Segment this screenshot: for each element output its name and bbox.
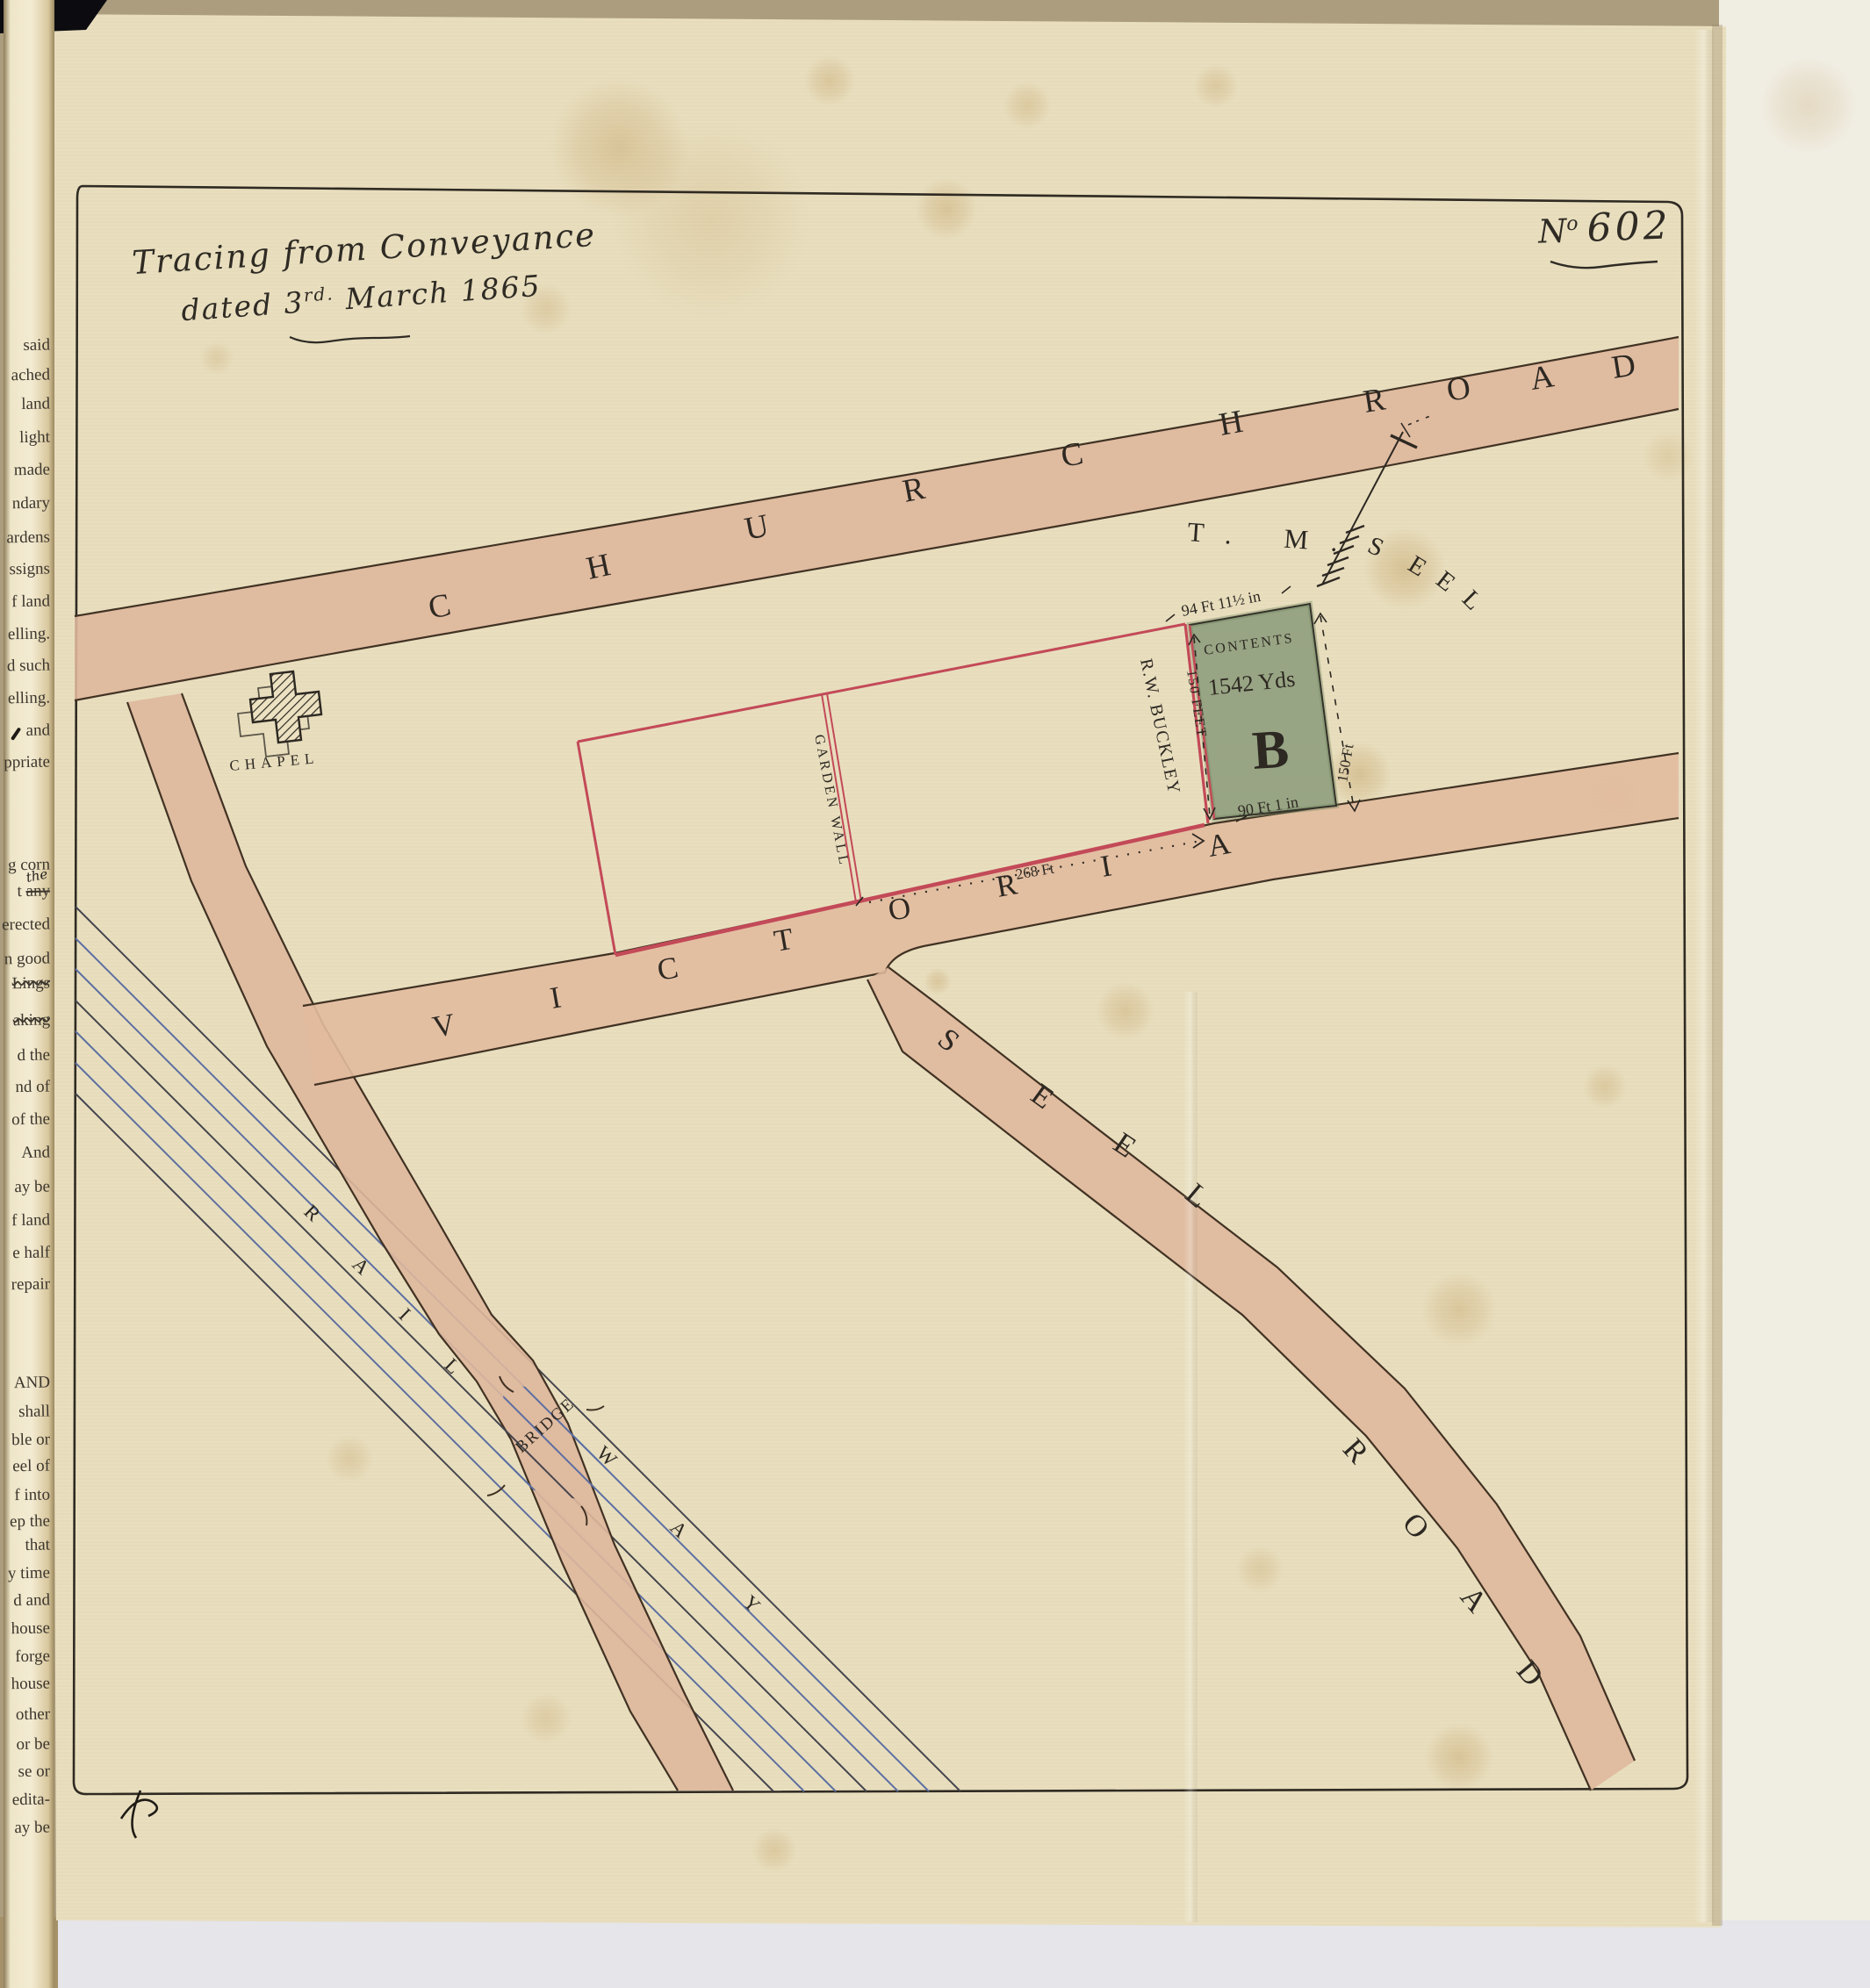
margin-line: ay be [0, 1818, 50, 1838]
margin-line: ardens [0, 528, 50, 548]
margin-line: light [0, 427, 50, 448]
plan-number-value: 602 [1586, 203, 1672, 250]
book-page-text-strip: said ached land light made ndary ardens … [4, 0, 54, 1988]
margin-line: se or [0, 1762, 50, 1782]
margin-line: f into [0, 1485, 50, 1505]
margin-line: d such [0, 656, 50, 676]
plot-b-name: B [1250, 719, 1291, 781]
margin-line: y time [0, 1563, 50, 1583]
margin-line: shall [0, 1402, 50, 1422]
margin-line: ppriate [0, 752, 50, 772]
margin-line: nd of [0, 1077, 50, 1097]
title-date-ordinal: rd. [303, 283, 334, 305]
margin-line: ay be [0, 1177, 50, 1197]
margin-line: e half [0, 1243, 50, 1263]
margin-line: elling. [0, 688, 50, 708]
margin-line: edita- [0, 1790, 50, 1810]
margin-line: f land [0, 592, 50, 612]
margin-line: of the [0, 1109, 50, 1130]
margin-line: And [0, 1143, 50, 1163]
right-page-edge [1719, 0, 1870, 1988]
margin-line: AND [0, 1373, 50, 1393]
margin-line: ssigns [0, 559, 50, 579]
paper-crease [1183, 992, 1198, 1922]
margin-line-struck: aking [0, 1010, 50, 1030]
margin-line: and [0, 721, 50, 741]
margin-line: d and [0, 1590, 50, 1611]
margin-line-corrected: t anythe [0, 881, 50, 901]
bottom-backing-strip [53, 1920, 1870, 1988]
scanned-conveyance-plan: C H U R C H R O A D V I C T O R I A 268 … [0, 0, 1870, 1988]
margin-line: land [0, 394, 50, 414]
margin-line: ndary [0, 493, 50, 513]
margin-line: that [0, 1535, 50, 1555]
margin-line: said [0, 335, 50, 355]
margin-line: house [0, 1674, 50, 1694]
margin-line: elling. [0, 624, 50, 644]
margin-line: f land [0, 1210, 50, 1231]
margin-line: n good [0, 949, 50, 969]
margin-line: or be [0, 1734, 50, 1755]
margin-line: erected [0, 915, 50, 935]
paper-crease [1694, 30, 1714, 1922]
margin-line: ble or [0, 1430, 50, 1450]
margin-line: repair [0, 1274, 50, 1295]
margin-line: ep the [0, 1511, 50, 1532]
margin-line: forge [0, 1647, 50, 1667]
plan-number: No602 [1537, 203, 1672, 252]
margin-line: other [0, 1705, 50, 1725]
plan-number-n: N [1537, 212, 1567, 251]
margin-line-struck: Lings [0, 973, 50, 994]
margin-line: ached [0, 365, 50, 385]
margin-line: eel of [0, 1456, 50, 1476]
margin-line: d the [0, 1045, 50, 1066]
margin-line: house [0, 1618, 50, 1639]
plan-number-o: o [1566, 213, 1579, 235]
margin-line: made [0, 460, 50, 480]
